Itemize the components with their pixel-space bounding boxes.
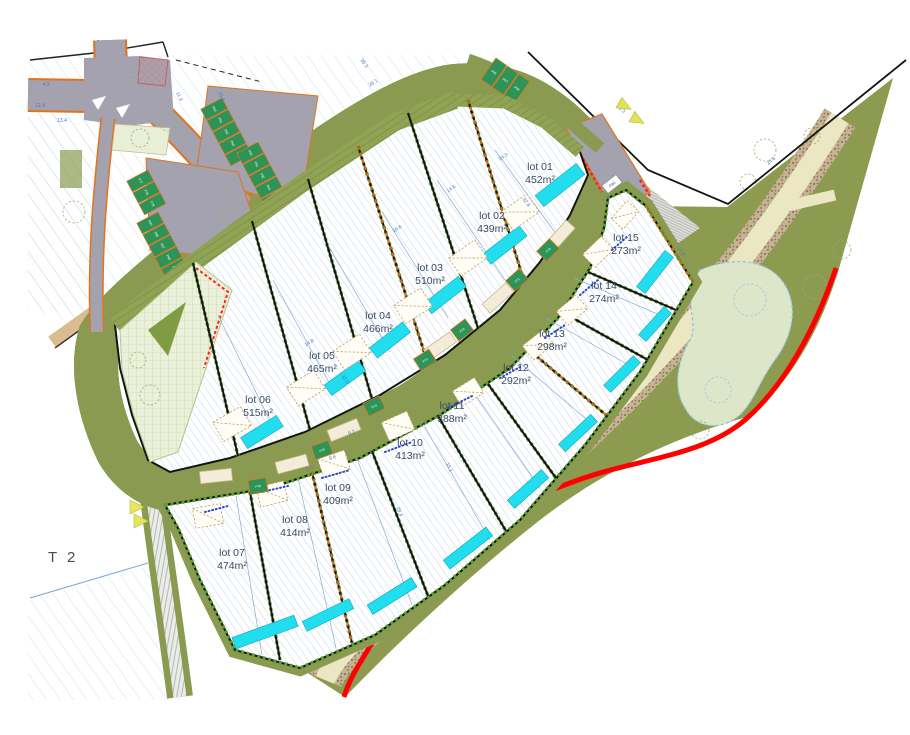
crosswalk-hatch (138, 57, 168, 86)
lot-06-label: lot 06 (245, 394, 271, 406)
site-plan-page: P60 P61 P62 P63 P64 P90 P91 P92 P93 P94 … (0, 0, 910, 735)
triangle-marker-icon (616, 97, 634, 114)
lot-08-area: 414m² (280, 527, 310, 539)
lot-07-label: lot 07 (219, 547, 245, 559)
t2-label: T 2 (48, 549, 78, 566)
dim-label: 4.3 (43, 82, 50, 88)
lot-05-label: lot 05 (309, 350, 335, 362)
dim-label: 13.4 (57, 118, 67, 124)
lot-02-area: 439m² (477, 223, 507, 235)
lot-10-area: 413m² (395, 450, 425, 462)
lot-09-area: 409m² (323, 495, 353, 507)
west-road (28, 95, 88, 96)
lot-14-area: 274m² (589, 293, 619, 305)
dim-label: 12.4 (35, 103, 45, 109)
lot-02-label: lot 02 (479, 210, 505, 222)
lot-14-label: lot 14 (591, 280, 617, 292)
lot-11-area: 388m² (437, 413, 467, 425)
triangle-marker-icon (629, 111, 647, 128)
lot-13-area: 298m² (537, 341, 567, 353)
parcel-west (28, 112, 95, 320)
lot-04-label: lot 04 (365, 310, 391, 322)
lot-01-area: 452m² (525, 174, 555, 186)
lot-03-area: 510m² (415, 275, 445, 287)
lot-11-label: lot 11 (440, 400, 465, 412)
lot-10-label: lot 10 (397, 437, 423, 449)
lot-15-area: 273m² (611, 245, 641, 257)
lot-06-area: 515m² (243, 407, 273, 419)
landscape-square (112, 124, 170, 155)
lot-05-area: 465m² (307, 363, 337, 375)
lot-01-label: lot 01 (527, 161, 553, 173)
lot-03-label: lot 03 (417, 262, 443, 274)
lot-09-label: lot 09 (325, 482, 351, 494)
lot-13-label: lot 13 (539, 328, 565, 340)
lot-08-label: lot 08 (282, 514, 308, 526)
site-plan-drawing: P60 P61 P62 P63 P64 P90 P91 P92 P93 P94 … (0, 0, 910, 735)
lot-07-area: 474m² (217, 560, 247, 572)
lot-04-area: 466m² (363, 323, 393, 335)
lot-15-label: lot 15 (613, 232, 639, 244)
lot-12-label: lot 12 (503, 362, 529, 374)
lot-12-area: 292m² (501, 375, 531, 387)
west-hedge-block (60, 150, 82, 188)
